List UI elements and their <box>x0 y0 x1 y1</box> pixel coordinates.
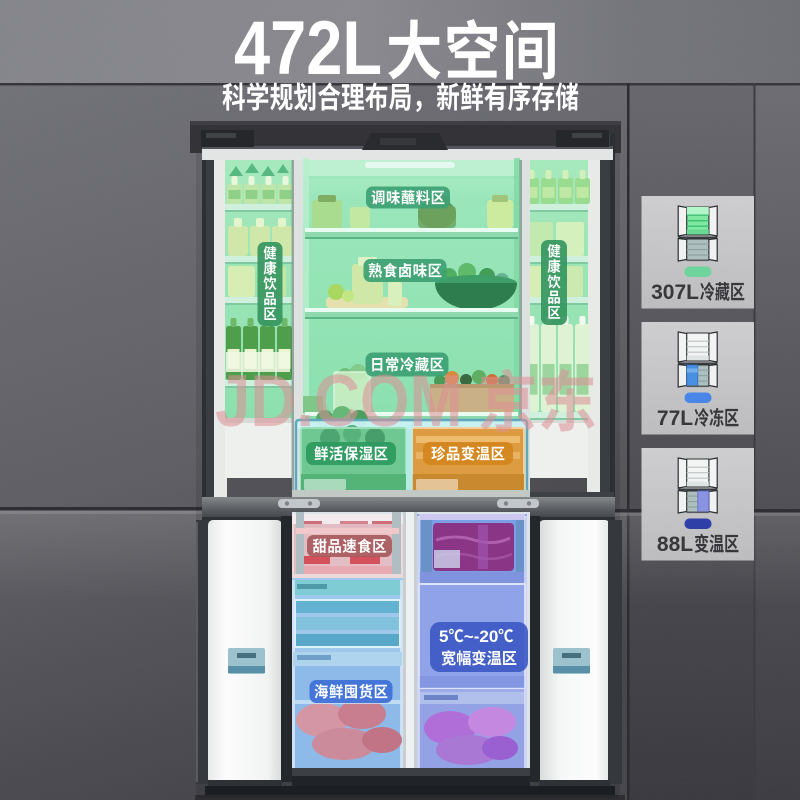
svg-text:77L: 77L <box>657 407 693 430</box>
svg-text:472L: 472L <box>234 6 382 91</box>
svg-text:88L: 88L <box>657 533 693 556</box>
svg-text:JD.COM: JD.COM <box>215 361 463 442</box>
svg-text:~-20: ~-20 <box>464 627 499 646</box>
svg-text:307L: 307L <box>651 281 699 304</box>
svg-text:5: 5 <box>439 627 448 646</box>
